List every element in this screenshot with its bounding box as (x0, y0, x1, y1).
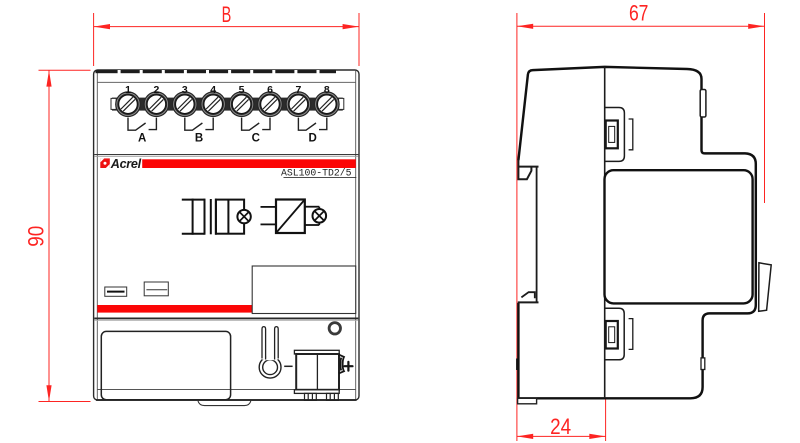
svg-text:7: 7 (295, 84, 301, 96)
svg-text:C: C (252, 132, 260, 144)
svg-text:5: 5 (239, 84, 245, 96)
svg-text:3: 3 (182, 84, 188, 96)
svg-text:1: 1 (125, 84, 131, 96)
svg-text:8: 8 (324, 84, 330, 96)
svg-text:6: 6 (267, 84, 273, 96)
svg-text:B: B (195, 132, 203, 144)
svg-text:2: 2 (153, 84, 159, 96)
svg-text:4: 4 (210, 84, 216, 96)
svg-text:Acrel: Acrel (110, 157, 142, 171)
svg-text:67: 67 (629, 0, 649, 25)
svg-text:90: 90 (24, 226, 49, 247)
svg-text:B: B (222, 2, 232, 27)
svg-text:24: 24 (550, 414, 571, 439)
svg-text:A: A (138, 132, 146, 144)
svg-text:D: D (308, 132, 316, 144)
